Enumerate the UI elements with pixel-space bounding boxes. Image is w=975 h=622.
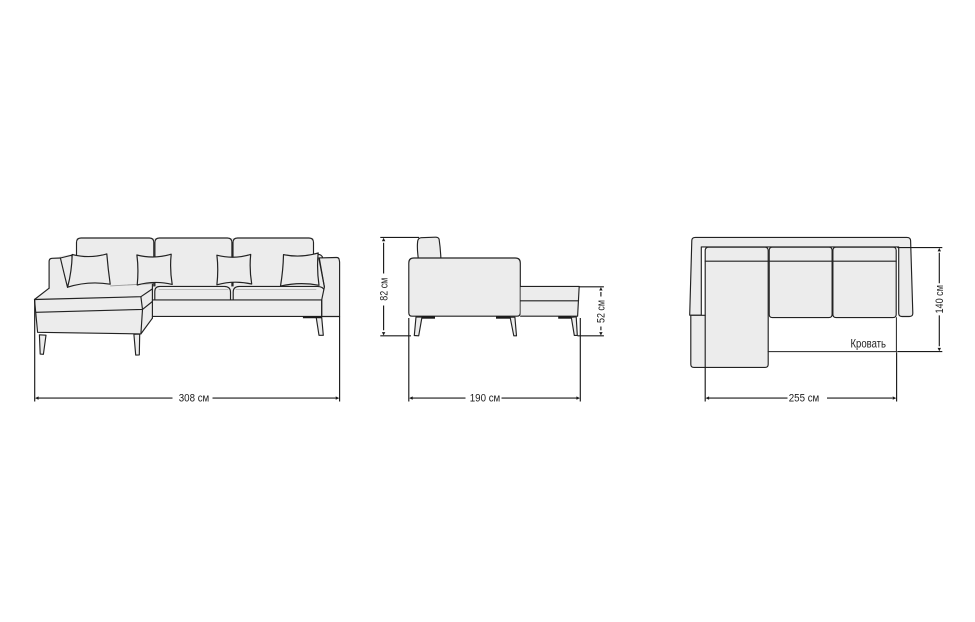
svg-text:52 см: 52 см xyxy=(596,300,608,323)
svg-text:255 см: 255 см xyxy=(789,392,820,404)
svg-text:82 см: 82 см xyxy=(378,278,390,301)
svg-text:140 см: 140 см xyxy=(934,285,946,314)
svg-text:Кровать: Кровать xyxy=(851,337,887,351)
svg-text:308 см: 308 см xyxy=(179,392,210,404)
svg-text:190 см: 190 см xyxy=(470,392,501,404)
